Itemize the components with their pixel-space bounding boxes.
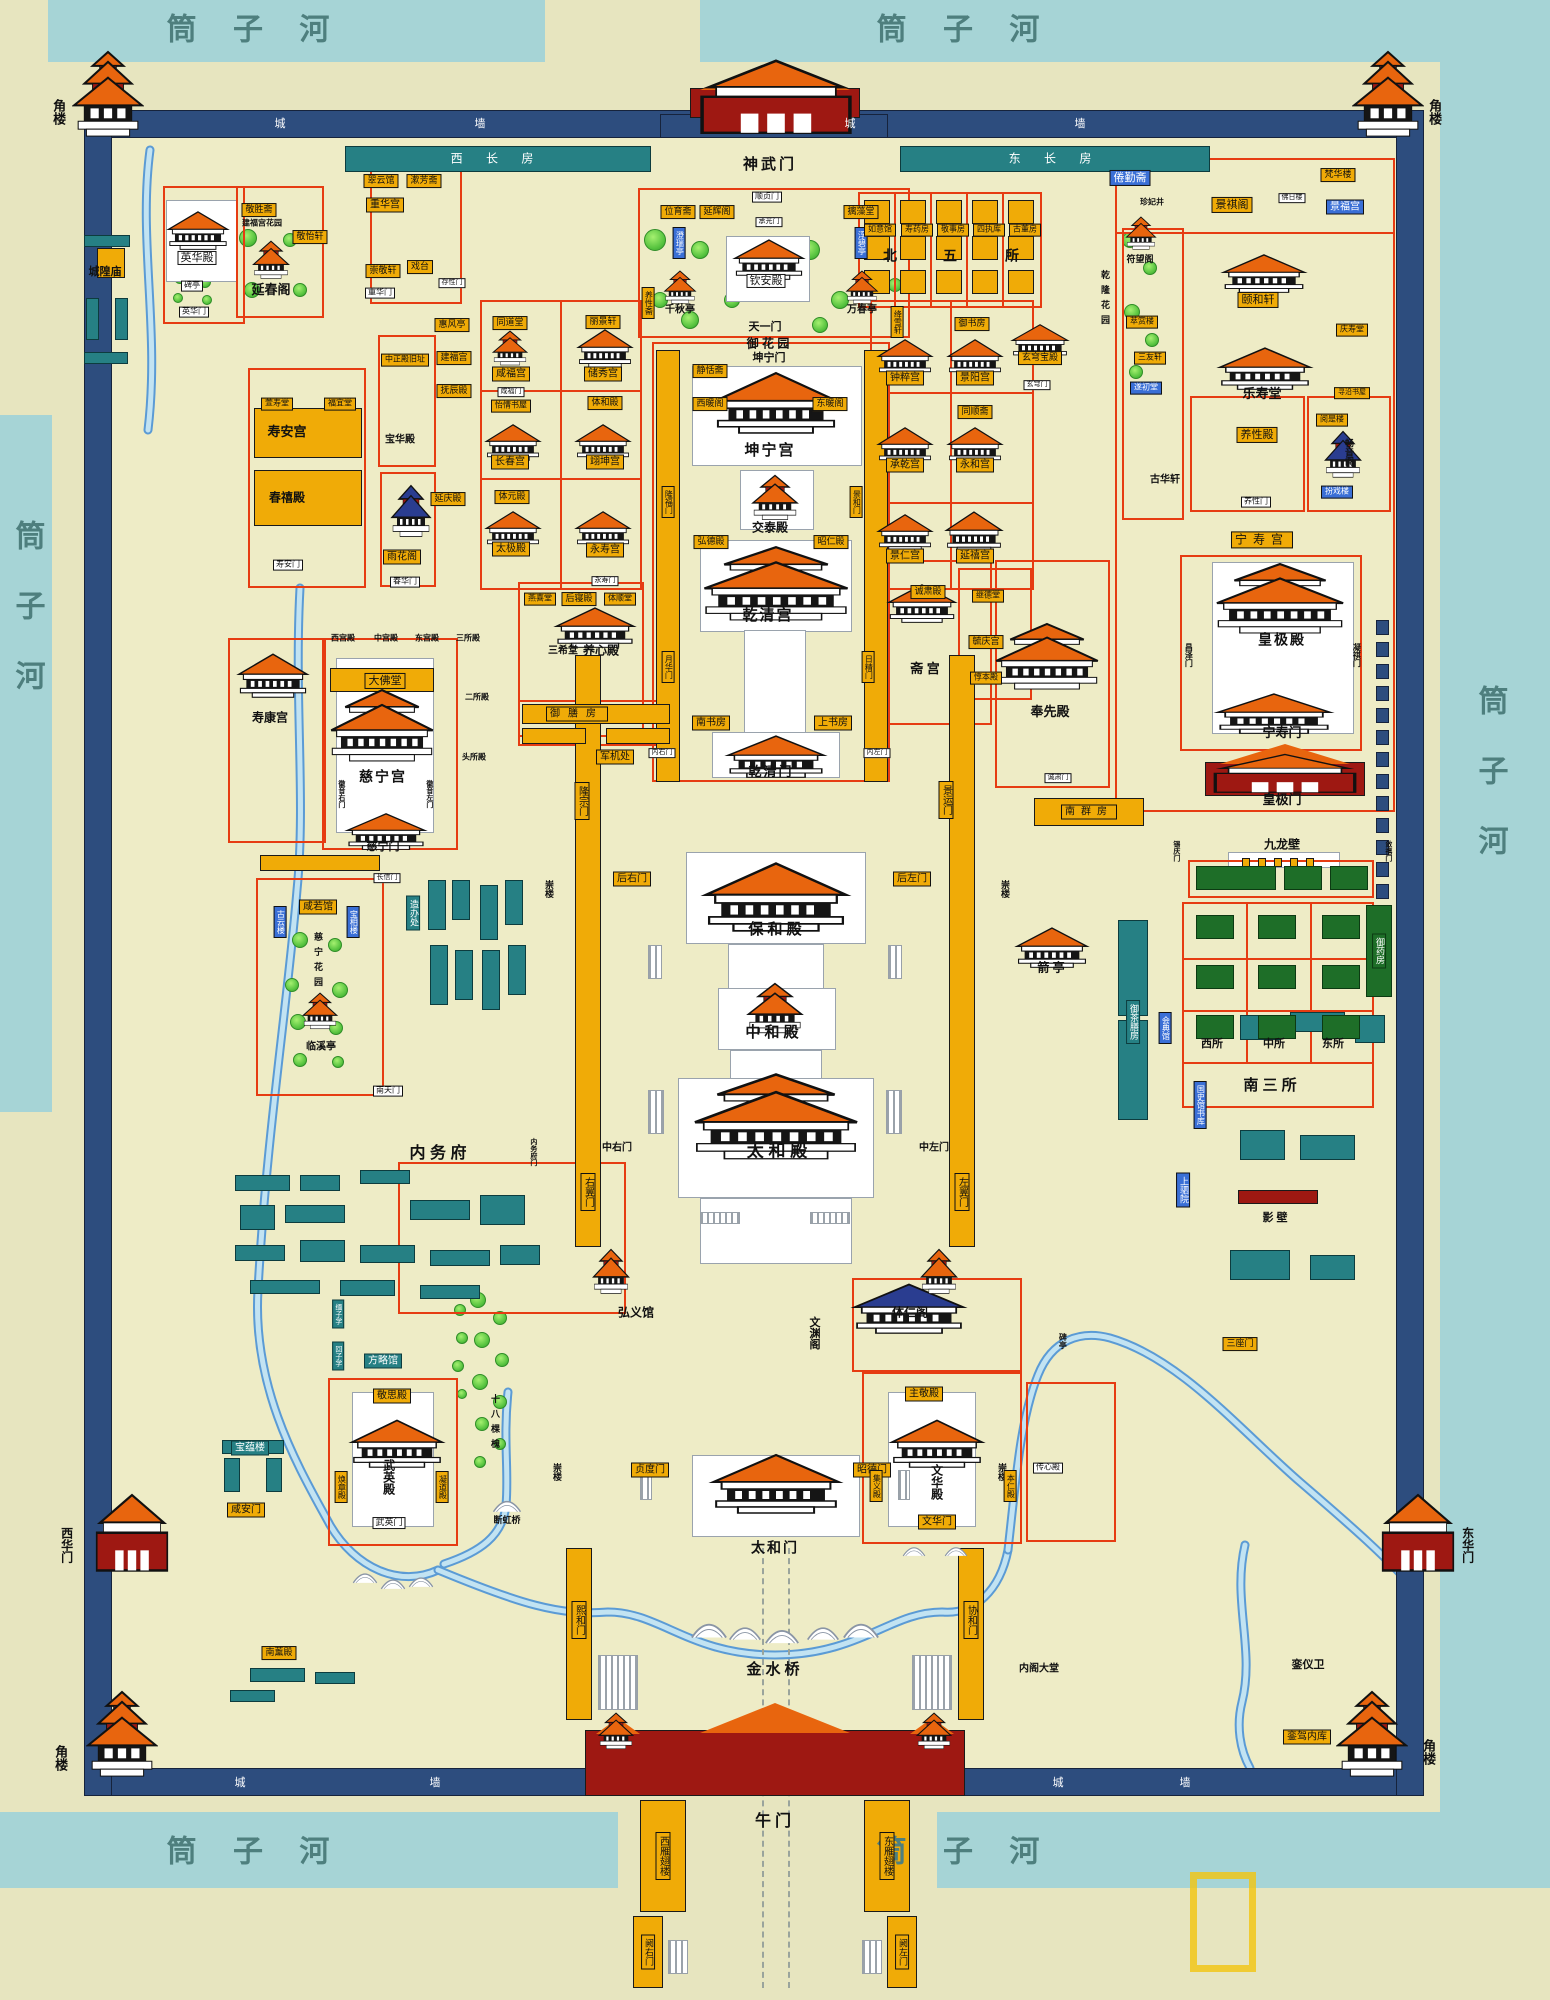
map-label: 御茶膳房 <box>1126 1000 1140 1044</box>
map-label: 古董房 <box>1009 224 1041 237</box>
teal-building <box>315 1672 355 1684</box>
yellow-building <box>972 236 998 260</box>
map-label: 交泰殿 <box>752 521 788 534</box>
map-label: 英华殿 <box>178 251 217 265</box>
map-label: 天一门 <box>749 321 782 333</box>
pav-building-icon <box>248 240 294 284</box>
map-label: 顺贞门 <box>752 192 782 203</box>
map-label: 寿安门 <box>273 560 303 571</box>
pav-building-icon <box>594 1712 638 1754</box>
yellow-building <box>522 728 586 744</box>
map-label: 养性殿 <box>1237 427 1278 443</box>
map-label: 宁寿门 <box>1262 726 1301 740</box>
hall-building-icon <box>1216 346 1314 390</box>
map-label: 长春宫 <box>491 455 529 470</box>
map-label: 中宫殿 <box>374 635 398 644</box>
bridge-icon <box>902 1544 926 1557</box>
yellow-building <box>260 855 380 871</box>
teal-building <box>1310 1255 1355 1280</box>
gate-building-icon <box>90 1490 174 1578</box>
map-label: 扮戏楼 <box>1321 486 1353 499</box>
map-label: 武英门 <box>372 1517 405 1529</box>
teal-building <box>452 880 470 920</box>
map-label: 玄穹门 <box>1024 380 1051 390</box>
map-label: 英华门 <box>179 307 209 318</box>
teal-building <box>480 1195 525 1225</box>
map-label: 敬胜斋 <box>241 203 276 217</box>
map-label: 景运门 <box>939 781 954 819</box>
green-building <box>1322 965 1360 989</box>
map-label: 军机处 <box>596 750 634 765</box>
courtyard-red-wall <box>1182 1062 1374 1064</box>
map-label: 奉先殿 <box>1030 705 1069 719</box>
bridge-icon <box>842 1618 880 1640</box>
map-label: 慈宁门 <box>367 841 400 853</box>
map-label: 主敬殿 <box>905 1387 943 1402</box>
bridge-icon <box>944 1544 968 1557</box>
teal-building <box>340 1280 395 1296</box>
map-label: 熙和门 <box>572 1601 587 1639</box>
map-label: 古华轩 <box>1150 475 1180 486</box>
map-label: 寿安宫 <box>267 425 306 439</box>
map-label: 会典馆 <box>1159 1012 1172 1044</box>
yellow-building <box>900 200 926 224</box>
map-label: 慈宁宫 <box>359 769 407 784</box>
map-label: 坤宁宫 <box>744 443 795 460</box>
map-label: 敛禧门 <box>1384 841 1392 862</box>
hall2-building-icon <box>328 688 436 762</box>
map-label: 凝道殿 <box>436 1471 449 1503</box>
map-label: 敬思殿 <box>373 1389 411 1404</box>
teal-building <box>250 1668 305 1682</box>
navy-structure <box>1376 884 1389 899</box>
hall-building-icon <box>348 1418 446 1468</box>
map-label: 后左门 <box>893 872 931 887</box>
map-label: 南书房 <box>692 716 730 731</box>
map-label: 摛藻堂 <box>843 205 878 219</box>
map-label: 中左门 <box>919 1143 949 1154</box>
map-label: 毓庆宫 <box>968 635 1003 649</box>
stairs-hatch <box>888 945 902 979</box>
navy-structure <box>1376 620 1389 635</box>
map-label: 斋 宫 <box>910 662 940 676</box>
map-label: 南薰殿 <box>261 1646 296 1660</box>
map-label: 宝相楼 <box>347 906 360 938</box>
pav-building-icon <box>746 474 804 526</box>
map-label: 重华门 <box>365 288 395 299</box>
teal-building <box>1230 1250 1290 1280</box>
map-label: 东所 <box>1322 1038 1344 1050</box>
courtyard-red-wall <box>1182 958 1374 960</box>
map-label: 内阁大堂 <box>1019 1664 1059 1675</box>
navy-structure <box>1376 708 1389 723</box>
map-label: 筒 子 河 <box>167 1836 344 1869</box>
hall-building-icon <box>708 1452 844 1514</box>
teal-building <box>1240 1130 1285 1160</box>
map-label: 贞度门 <box>631 1463 669 1478</box>
yellow-building <box>972 200 998 224</box>
green-building <box>1258 1015 1296 1039</box>
map-label: 崇楼 <box>551 1463 561 1481</box>
map-label: 墙 <box>1180 1777 1191 1789</box>
map-label: 皇极门 <box>1262 793 1301 807</box>
map-label: 角楼 <box>1421 1739 1435 1765</box>
navy-structure <box>1376 752 1389 767</box>
navy-structure <box>1376 664 1389 679</box>
map-label: 太极殿 <box>492 542 530 557</box>
map-label: 九龙壁 <box>1264 838 1300 851</box>
map-label: 体元殿 <box>494 490 529 504</box>
map-label: 弘德殿 <box>693 535 728 549</box>
map-label: 倦勤斋 <box>1110 170 1151 186</box>
hall2-building-icon <box>1213 562 1347 634</box>
hall-building-icon <box>888 1418 986 1468</box>
stairs-hatch <box>810 1212 850 1224</box>
map-label: 城 <box>275 118 286 130</box>
map-label: 咸福门 <box>498 387 525 397</box>
map-label: 四执库 <box>973 224 1005 237</box>
map-label: 体仁阁 <box>892 1306 928 1319</box>
yellow-building <box>900 270 926 294</box>
map-label: 景仁宫 <box>886 549 924 564</box>
hall-building-icon <box>944 510 1004 552</box>
map-label: 福宜堂 <box>324 398 356 411</box>
map-label: 城隍庙 <box>89 266 122 278</box>
map-label: 乾隆花园 <box>1099 270 1109 330</box>
map-label: 徽音右门 <box>337 780 345 808</box>
corner-building-icon <box>1336 1690 1408 1785</box>
map-label: 阙左门 <box>895 1935 909 1970</box>
teal-building <box>410 1200 470 1220</box>
map-label: 珍妃井 <box>1140 199 1164 208</box>
courtyard-red-wall <box>1002 192 1004 308</box>
map-label: 本仁殿 <box>1004 1470 1017 1502</box>
map-label: 中 和 殿 <box>745 1025 798 1042</box>
tree-icon <box>472 1374 488 1390</box>
map-label: 景福宫 <box>1326 200 1364 215</box>
map-label: 内右门 <box>649 748 676 758</box>
map-label: 燕喜堂 <box>524 593 556 606</box>
map-label: 东 长 房 <box>1009 152 1102 165</box>
map-label: 戏台 <box>407 260 433 274</box>
teal-building <box>84 235 130 247</box>
map-label: 丽景轩 <box>585 315 620 329</box>
label-xihuamen: 西华门 <box>59 1527 72 1563</box>
map-label: 头所殿 <box>462 754 486 763</box>
yellow-frame-watermark <box>1190 1872 1256 1972</box>
map-label: 北 <box>883 248 897 263</box>
map-label: 寻沿书屋 <box>1334 387 1370 399</box>
map-label: 宝华殿 <box>385 435 415 446</box>
map-label: 古云楼 <box>274 906 287 938</box>
map-label: 建福宫 <box>436 351 471 365</box>
dark-red-gate-block <box>1238 1190 1318 1204</box>
map-label: 中正殿旧址 <box>381 354 429 367</box>
map-label: 焕章殿 <box>335 1471 348 1503</box>
map-label: 萱寿堂 <box>261 398 293 411</box>
map-label: 三所殿 <box>456 635 480 644</box>
courtyard-red-wall <box>870 502 1034 504</box>
map-label: 建福宫花园 <box>242 220 282 229</box>
map-label: 钟粹宫 <box>886 371 924 386</box>
map-label: 雨花阁 <box>383 550 421 565</box>
map-label: 角楼 <box>51 99 65 125</box>
map-label: 临溪亭 <box>306 1042 336 1053</box>
bridge-icon <box>492 1497 522 1513</box>
map-label: 隆宗门 <box>575 782 590 820</box>
map-label: 承光门 <box>756 217 783 227</box>
map-label: 金水桥 <box>746 1662 803 1679</box>
yellow-building <box>972 270 998 294</box>
green-building <box>1258 965 1296 989</box>
map-label: 上驷院 <box>1176 1173 1190 1208</box>
map-label: 咸若馆 <box>299 900 337 915</box>
map-label: 銮驾内库 <box>1283 1730 1331 1745</box>
yellow-building <box>606 728 670 744</box>
forbidden-city-map: 筒 子 河筒 子 河筒子河筒子河筒 子 河筒 子 河城墙城墙城墙城墙西 长 房东… <box>0 0 1550 2000</box>
bridge-icon <box>728 1622 762 1642</box>
map-label: 庆寿堂 <box>1336 324 1368 337</box>
map-label: 阙右门 <box>641 1935 655 1970</box>
tree-icon <box>474 1456 486 1468</box>
navy-structure <box>1376 862 1389 877</box>
map-label: 徽音左门 <box>425 780 433 808</box>
map-label: 崇楼 <box>999 880 1009 898</box>
teal-building <box>300 1175 340 1191</box>
map-label: 延辉阁 <box>699 205 734 219</box>
map-label: 翠云馆 <box>363 174 398 188</box>
map-label: 国史馆书库 <box>1194 1081 1207 1129</box>
map-label: 坤宁门 <box>753 352 786 364</box>
teal-building <box>360 1245 415 1263</box>
map-label: 影 壁 <box>1262 1212 1287 1224</box>
map-label: 三希堂 <box>548 646 578 657</box>
teal-building <box>360 1170 410 1184</box>
map-label: 惠风亭 <box>434 318 469 332</box>
teal-building <box>300 1240 345 1262</box>
map-label: 后右门 <box>613 872 651 887</box>
map-label: 西 长 房 <box>451 152 544 165</box>
map-label: 颐和轩 <box>1238 292 1279 308</box>
map-label: 碑亭 <box>181 281 203 292</box>
bridge-icon <box>380 1576 406 1590</box>
map-label: 抚辰殿 <box>436 384 471 398</box>
map-label: 协和门 <box>964 1601 979 1639</box>
map-label: 西宫殿 <box>331 635 355 644</box>
teal-building <box>508 945 526 995</box>
map-label: 翊坤宫 <box>586 455 624 470</box>
teal-building <box>420 1285 480 1299</box>
map-label: 宁寿宫 <box>1231 531 1293 548</box>
map-label: 墙 <box>475 118 486 130</box>
map-label: 内 务 府 <box>410 1145 467 1163</box>
tree-icon <box>474 1332 490 1348</box>
stairs-hatch <box>886 1090 902 1134</box>
map-label: 体和殿 <box>587 396 622 410</box>
stairs-hatch <box>898 1470 910 1500</box>
map-label: 后寝殿 <box>561 592 596 606</box>
map-label: 锡庆门 <box>1172 841 1180 862</box>
map-label: 箭 亭 <box>1037 961 1064 974</box>
map-label: 右翼门 <box>581 1173 596 1211</box>
courtyard-red-wall <box>1182 1010 1374 1012</box>
teal-building <box>482 950 500 1010</box>
map-label: 永寿门 <box>592 576 619 586</box>
yellow-building <box>1008 200 1034 224</box>
map-label: 乐寿堂 <box>1242 387 1281 401</box>
pav-building-icon <box>588 1248 634 1300</box>
yellow-building <box>864 350 888 782</box>
bridge-icon <box>690 1618 728 1640</box>
teal-building <box>1300 1135 1355 1160</box>
map-label: 诚肃殿 <box>910 585 945 599</box>
teal-building <box>250 1280 320 1294</box>
map-label: 碑亭 <box>1058 1333 1067 1349</box>
map-label: 御膳房 <box>546 707 608 722</box>
map-label: 弘义馆 <box>618 1306 654 1319</box>
map-label: 文华殿 <box>929 1464 942 1500</box>
map-label: 如意馆 <box>864 224 896 237</box>
map-label: 万春亭 <box>847 305 877 316</box>
teal-building <box>84 352 128 364</box>
bpav-building-icon <box>386 484 436 544</box>
teal-building <box>430 945 448 1005</box>
corner-building-icon <box>72 50 144 145</box>
tree-icon <box>456 1332 468 1344</box>
yellow-building <box>949 655 975 1247</box>
hall-building-icon <box>1220 253 1308 293</box>
stairs-hatch <box>668 1940 688 1974</box>
map-label: 筒子河 <box>1474 685 1507 895</box>
map-label: 城 <box>845 118 856 130</box>
tree-icon <box>457 1389 467 1399</box>
map-label: 慈宁花园 <box>312 932 322 992</box>
stairs-hatch <box>912 1655 952 1710</box>
map-label: 月华门 <box>662 651 675 683</box>
map-label: 御药房 <box>1372 934 1386 969</box>
map-label: 武英殿 <box>381 1459 394 1495</box>
map-label: 钦安殿 <box>747 274 786 288</box>
courtyard-red-wall <box>1190 396 1305 512</box>
teal-building <box>430 1250 490 1266</box>
pav-building-icon <box>1122 216 1160 254</box>
map-label: 东暖阁 <box>812 397 847 411</box>
map-label: 墙 <box>1075 118 1086 130</box>
courtyard-red-wall <box>966 192 968 308</box>
teal-building <box>224 1458 240 1492</box>
navy-structure <box>1376 818 1389 833</box>
map-label: 回子学 <box>332 1342 344 1371</box>
green-building <box>1330 866 1368 890</box>
map-label: 大佛堂 <box>365 673 406 689</box>
green-building <box>1284 866 1322 890</box>
map-label: 怡情书屋 <box>491 400 531 413</box>
dark-red-gate-block <box>585 1730 965 1796</box>
green-building <box>1196 1015 1234 1039</box>
courtyard-red-wall <box>1310 902 1312 1062</box>
map-label: 城 <box>235 1777 246 1789</box>
map-label: 玄穹宝殿 <box>1018 351 1062 365</box>
pav-building-icon <box>488 330 532 370</box>
map-label: 方略馆 <box>364 1354 402 1369</box>
map-label: 保 和 殿 <box>748 922 801 939</box>
teal-building <box>266 1458 282 1492</box>
tree-icon <box>452 1360 464 1372</box>
map-label: 位育斋 <box>660 205 695 219</box>
map-label: 存性门 <box>439 278 466 288</box>
map-label: 集义殿 <box>870 1470 883 1502</box>
label-shenwumen: 神武门 <box>743 157 797 174</box>
map-label: 景阳宫 <box>956 371 994 386</box>
teal-building <box>455 950 473 1000</box>
map-label: 畅音阁 <box>1343 439 1353 466</box>
teal-building <box>505 880 523 925</box>
map-label: 永和宫 <box>956 458 994 473</box>
map-label: 敬事房 <box>937 224 969 237</box>
map-label: 敬怡轩 <box>292 230 327 244</box>
bridge-icon <box>352 1570 378 1584</box>
map-label: 春禧殿 <box>269 491 305 504</box>
pav-building-icon <box>660 270 700 308</box>
label-wumen: 午门 <box>755 1813 795 1831</box>
hall-building-icon <box>553 606 637 648</box>
map-label: 永寿宫 <box>586 543 624 558</box>
teal-building <box>500 1245 540 1265</box>
navy-structure <box>1376 796 1389 811</box>
map-label: 景和门 <box>850 486 863 518</box>
pav-building-icon <box>842 270 882 308</box>
yellow-building <box>1008 270 1034 294</box>
map-label: 造办处 <box>406 896 420 931</box>
map-label: 昭仁殿 <box>813 535 848 549</box>
map-label: 延禧宫 <box>956 549 994 564</box>
map-label: 东宫殿 <box>415 635 439 644</box>
hall-building-icon <box>166 210 230 250</box>
label-donghuamen: 东华门 <box>1460 1527 1473 1563</box>
tree-icon <box>475 1417 489 1431</box>
teal-building <box>428 880 446 930</box>
map-label: 崇敬轩 <box>365 264 400 278</box>
gate-building-icon <box>688 56 864 140</box>
map-label: 绛雪轩 <box>891 306 904 338</box>
map-label: 太 和 殿 <box>747 1143 807 1162</box>
gate-building-icon <box>1202 752 1368 796</box>
map-label: 承乾宫 <box>886 458 924 473</box>
yellow-building <box>936 270 962 294</box>
pav-building-icon <box>912 1712 956 1754</box>
map-label: 重华宫 <box>366 198 404 213</box>
map-label: 储秀宫 <box>584 367 622 382</box>
bridge-icon <box>764 1624 800 1646</box>
map-label: 左翼门 <box>955 1173 970 1211</box>
map-label: 缅子学 <box>332 1300 344 1329</box>
teal-building <box>115 298 128 340</box>
navy-structure <box>1376 642 1389 657</box>
stairs-hatch <box>648 945 662 979</box>
map-label: 遂初堂 <box>1130 382 1162 395</box>
map-label: 南天门 <box>373 1086 403 1097</box>
map-label: 十八棵槐 <box>489 1394 499 1454</box>
map-label: 角楼 <box>1427 99 1441 125</box>
map-label: 乾清门 <box>748 765 793 779</box>
map-label: 静恬斋 <box>692 364 727 378</box>
map-label: 东雁翅楼 <box>880 1832 895 1880</box>
yellow-building <box>936 200 962 224</box>
map-label: 三友轩 <box>1134 352 1166 365</box>
map-label: 御 花 园 <box>747 337 790 350</box>
map-label: 凝祺门 <box>1352 643 1361 667</box>
map-label: 角楼 <box>53 1745 67 1771</box>
